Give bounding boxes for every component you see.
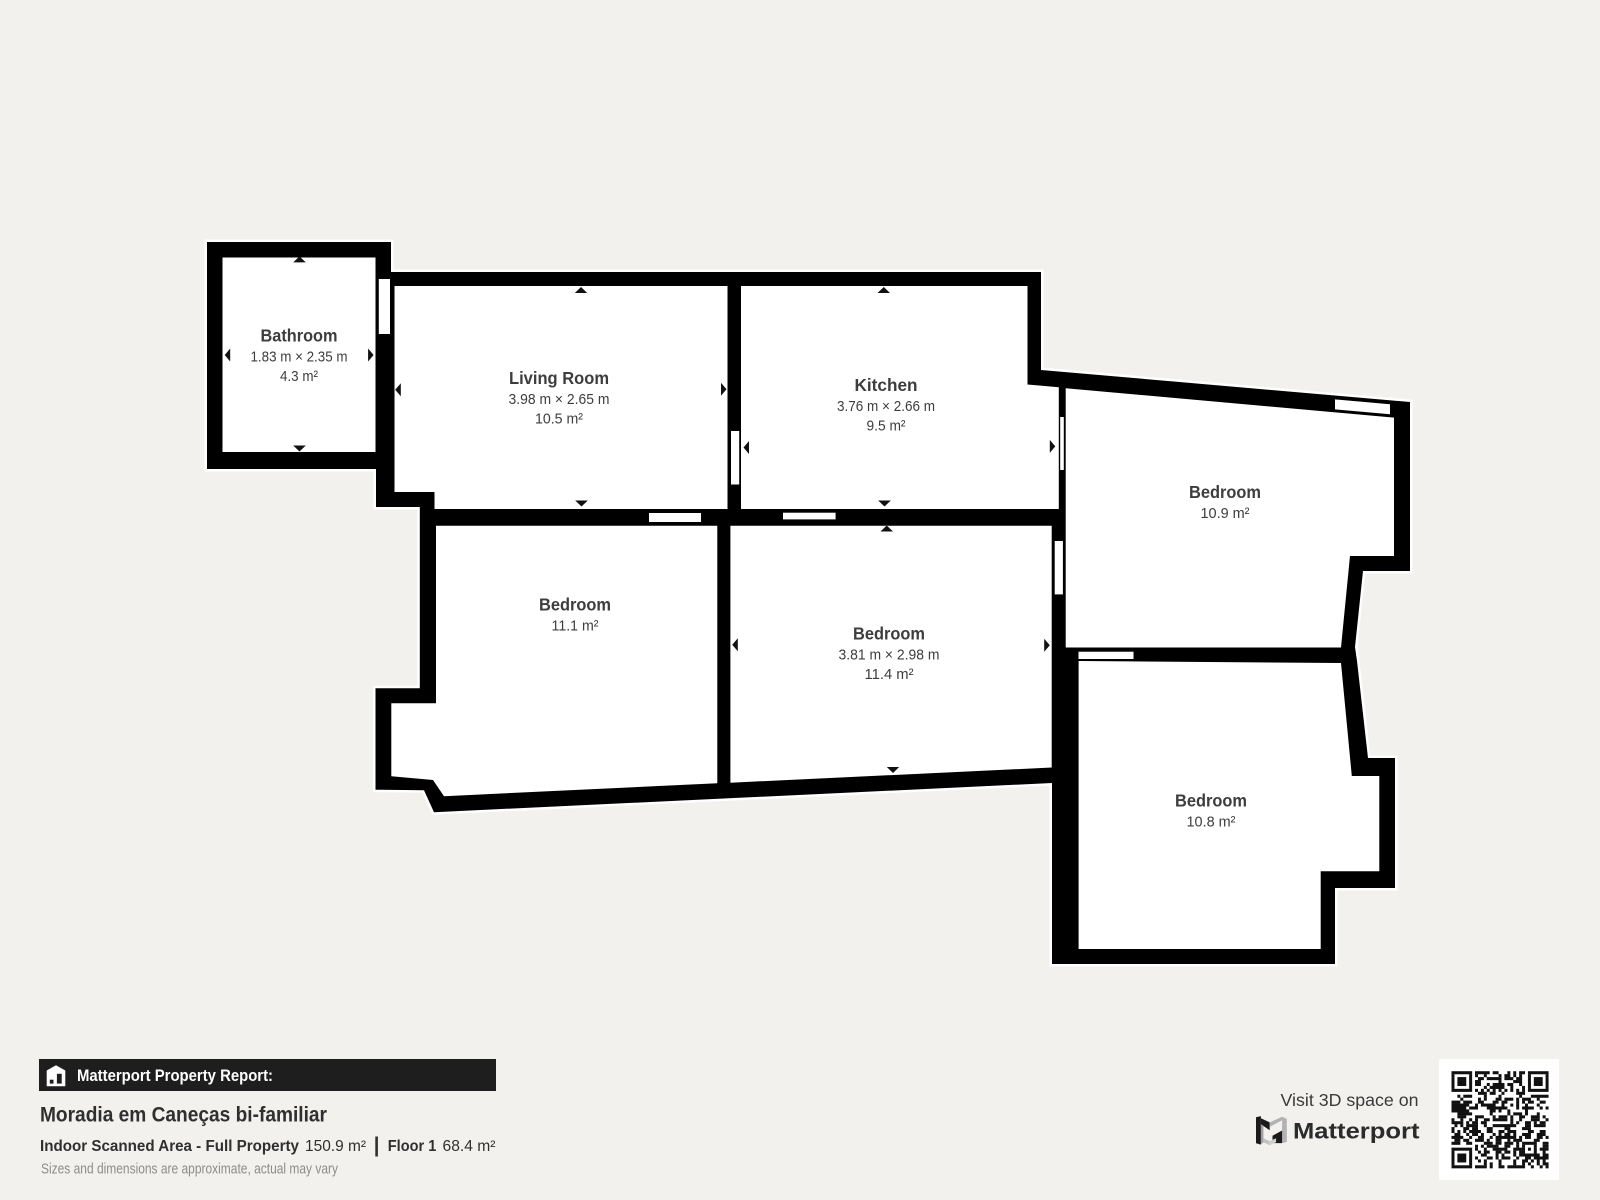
svg-text:4.3 m²: 4.3 m²: [280, 368, 318, 385]
svg-text:Sizes and dimensions are appro: Sizes and dimensions are approximate, ac…: [41, 1162, 339, 1178]
svg-text:Bedroom: Bedroom: [1189, 482, 1261, 502]
svg-text:Bedroom: Bedroom: [853, 624, 925, 644]
svg-text:Kitchen: Kitchen: [855, 375, 918, 395]
svg-text:Indoor Scanned Area - Full Pro: Indoor Scanned Area - Full Property: [40, 1138, 299, 1155]
svg-text:11.1 m²: 11.1 m²: [552, 617, 599, 634]
svg-text:3.81 m × 2.98 m: 3.81 m × 2.98 m: [839, 646, 940, 663]
svg-text:Bedroom: Bedroom: [539, 595, 611, 615]
svg-text:Matterport: Matterport: [1293, 1119, 1420, 1144]
svg-text:Matterport Property Report:: Matterport Property Report:: [77, 1066, 273, 1085]
svg-text:Bathroom: Bathroom: [261, 326, 338, 346]
svg-text:3.98 m × 2.65 m: 3.98 m × 2.65 m: [509, 391, 610, 408]
svg-text:150.9 m²: 150.9 m²: [305, 1138, 366, 1155]
svg-text:Bedroom: Bedroom: [1175, 791, 1247, 811]
svg-text:Visit 3D space on: Visit 3D space on: [1281, 1090, 1419, 1110]
svg-text:10.9 m²: 10.9 m²: [1201, 505, 1250, 522]
svg-text:9.5 m²: 9.5 m²: [867, 417, 906, 434]
svg-text:Floor 1: Floor 1: [388, 1138, 437, 1155]
svg-text:1.83 m × 2.35 m: 1.83 m × 2.35 m: [251, 348, 348, 365]
svg-text:11.4 m²: 11.4 m²: [865, 666, 914, 683]
svg-text:10.5 m²: 10.5 m²: [535, 410, 583, 427]
svg-text:3.76 m × 2.66 m: 3.76 m × 2.66 m: [837, 398, 935, 415]
svg-text:Living Room: Living Room: [509, 368, 609, 388]
svg-text:68.4 m²: 68.4 m²: [443, 1138, 496, 1155]
svg-text:10.8 m²: 10.8 m²: [1187, 813, 1236, 830]
svg-text:Moradia em Caneças bi-familiar: Moradia em Caneças bi-familiar: [40, 1103, 328, 1127]
